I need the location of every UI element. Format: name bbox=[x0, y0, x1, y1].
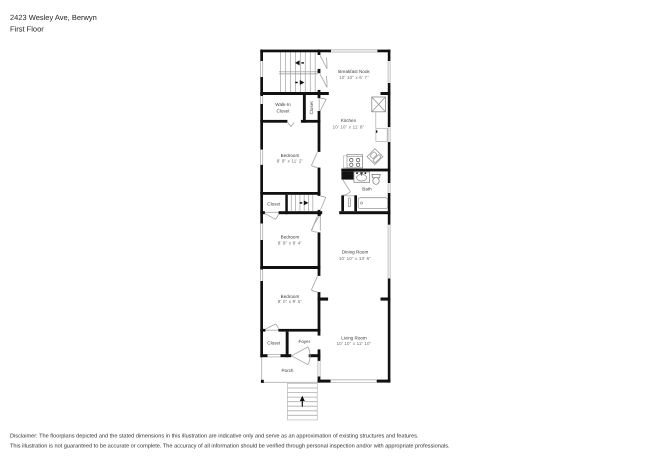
svg-text:Living Room: Living Room bbox=[341, 335, 367, 340]
svg-text:Kitchen: Kitchen bbox=[341, 118, 357, 123]
svg-text:10' 10" x 11' 8": 10' 10" x 11' 8" bbox=[333, 124, 365, 129]
svg-text:Bedroom: Bedroom bbox=[281, 234, 300, 239]
svg-text:8' 9" x 11' 2": 8' 9" x 11' 2" bbox=[277, 158, 304, 163]
svg-text:2423 Wesley Ave, Berwyn: 2423 Wesley Ave, Berwyn bbox=[10, 13, 97, 22]
svg-text:Dining Room: Dining Room bbox=[342, 249, 369, 254]
svg-text:Bath: Bath bbox=[362, 187, 372, 192]
svg-text:Walk-In: Walk-In bbox=[275, 102, 291, 107]
svg-text:10' 10" x 13' 6": 10' 10" x 13' 6" bbox=[339, 256, 371, 261]
svg-text:Closet: Closet bbox=[267, 202, 281, 207]
svg-text:Disclaimer: The floorplans dep: Disclaimer: The floorplans depicted and … bbox=[10, 432, 419, 439]
svg-text:Closet: Closet bbox=[309, 101, 314, 115]
svg-text:Closet: Closet bbox=[276, 109, 290, 114]
svg-text:This illustration is not guara: This illustration is not guaranteed to b… bbox=[10, 443, 450, 450]
svg-text:Bedroom: Bedroom bbox=[281, 294, 300, 299]
svg-text:Breakfast Nook: Breakfast Nook bbox=[338, 69, 370, 74]
svg-text:First Floor: First Floor bbox=[10, 25, 44, 34]
svg-text:Closet: Closet bbox=[267, 341, 281, 346]
svg-text:10' 10" x 12' 10": 10' 10" x 12' 10" bbox=[337, 341, 372, 346]
svg-text:Porch: Porch bbox=[281, 368, 293, 373]
svg-text:Bedroom: Bedroom bbox=[281, 153, 300, 158]
svg-text:10' 10" x 6' 7": 10' 10" x 6' 7" bbox=[339, 75, 369, 80]
svg-text:Foyer: Foyer bbox=[299, 339, 311, 344]
svg-text:8' 8" x 8' 4": 8' 8" x 8' 4" bbox=[278, 241, 302, 246]
svg-text:8' 0" x 9' 5": 8' 0" x 9' 5" bbox=[278, 299, 302, 304]
